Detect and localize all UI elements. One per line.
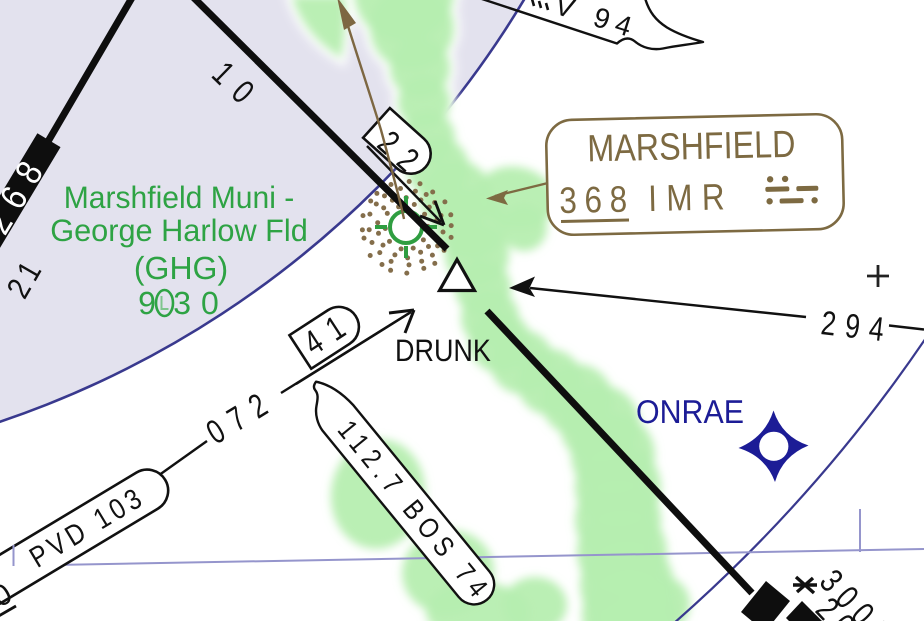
svg-text:(GHG): (GHG) — [134, 250, 228, 286]
svg-text:MARSHFIELD: MARSHFIELD — [587, 124, 796, 171]
svg-text:IMR: IMR — [648, 176, 735, 219]
svg-text:ONRAE: ONRAE — [636, 393, 744, 430]
svg-text:9: 9 — [138, 285, 156, 321]
svg-text:George Harlow Fld: George Harlow Fld — [50, 213, 308, 248]
svg-text:DRUNK: DRUNK — [395, 333, 491, 368]
svg-text:Marshfield Muni -: Marshfield Muni - — [64, 180, 295, 215]
svg-text:294: 294 — [819, 304, 895, 350]
svg-text:30: 30 — [173, 285, 229, 321]
svg-text:368: 368 — [559, 178, 635, 221]
